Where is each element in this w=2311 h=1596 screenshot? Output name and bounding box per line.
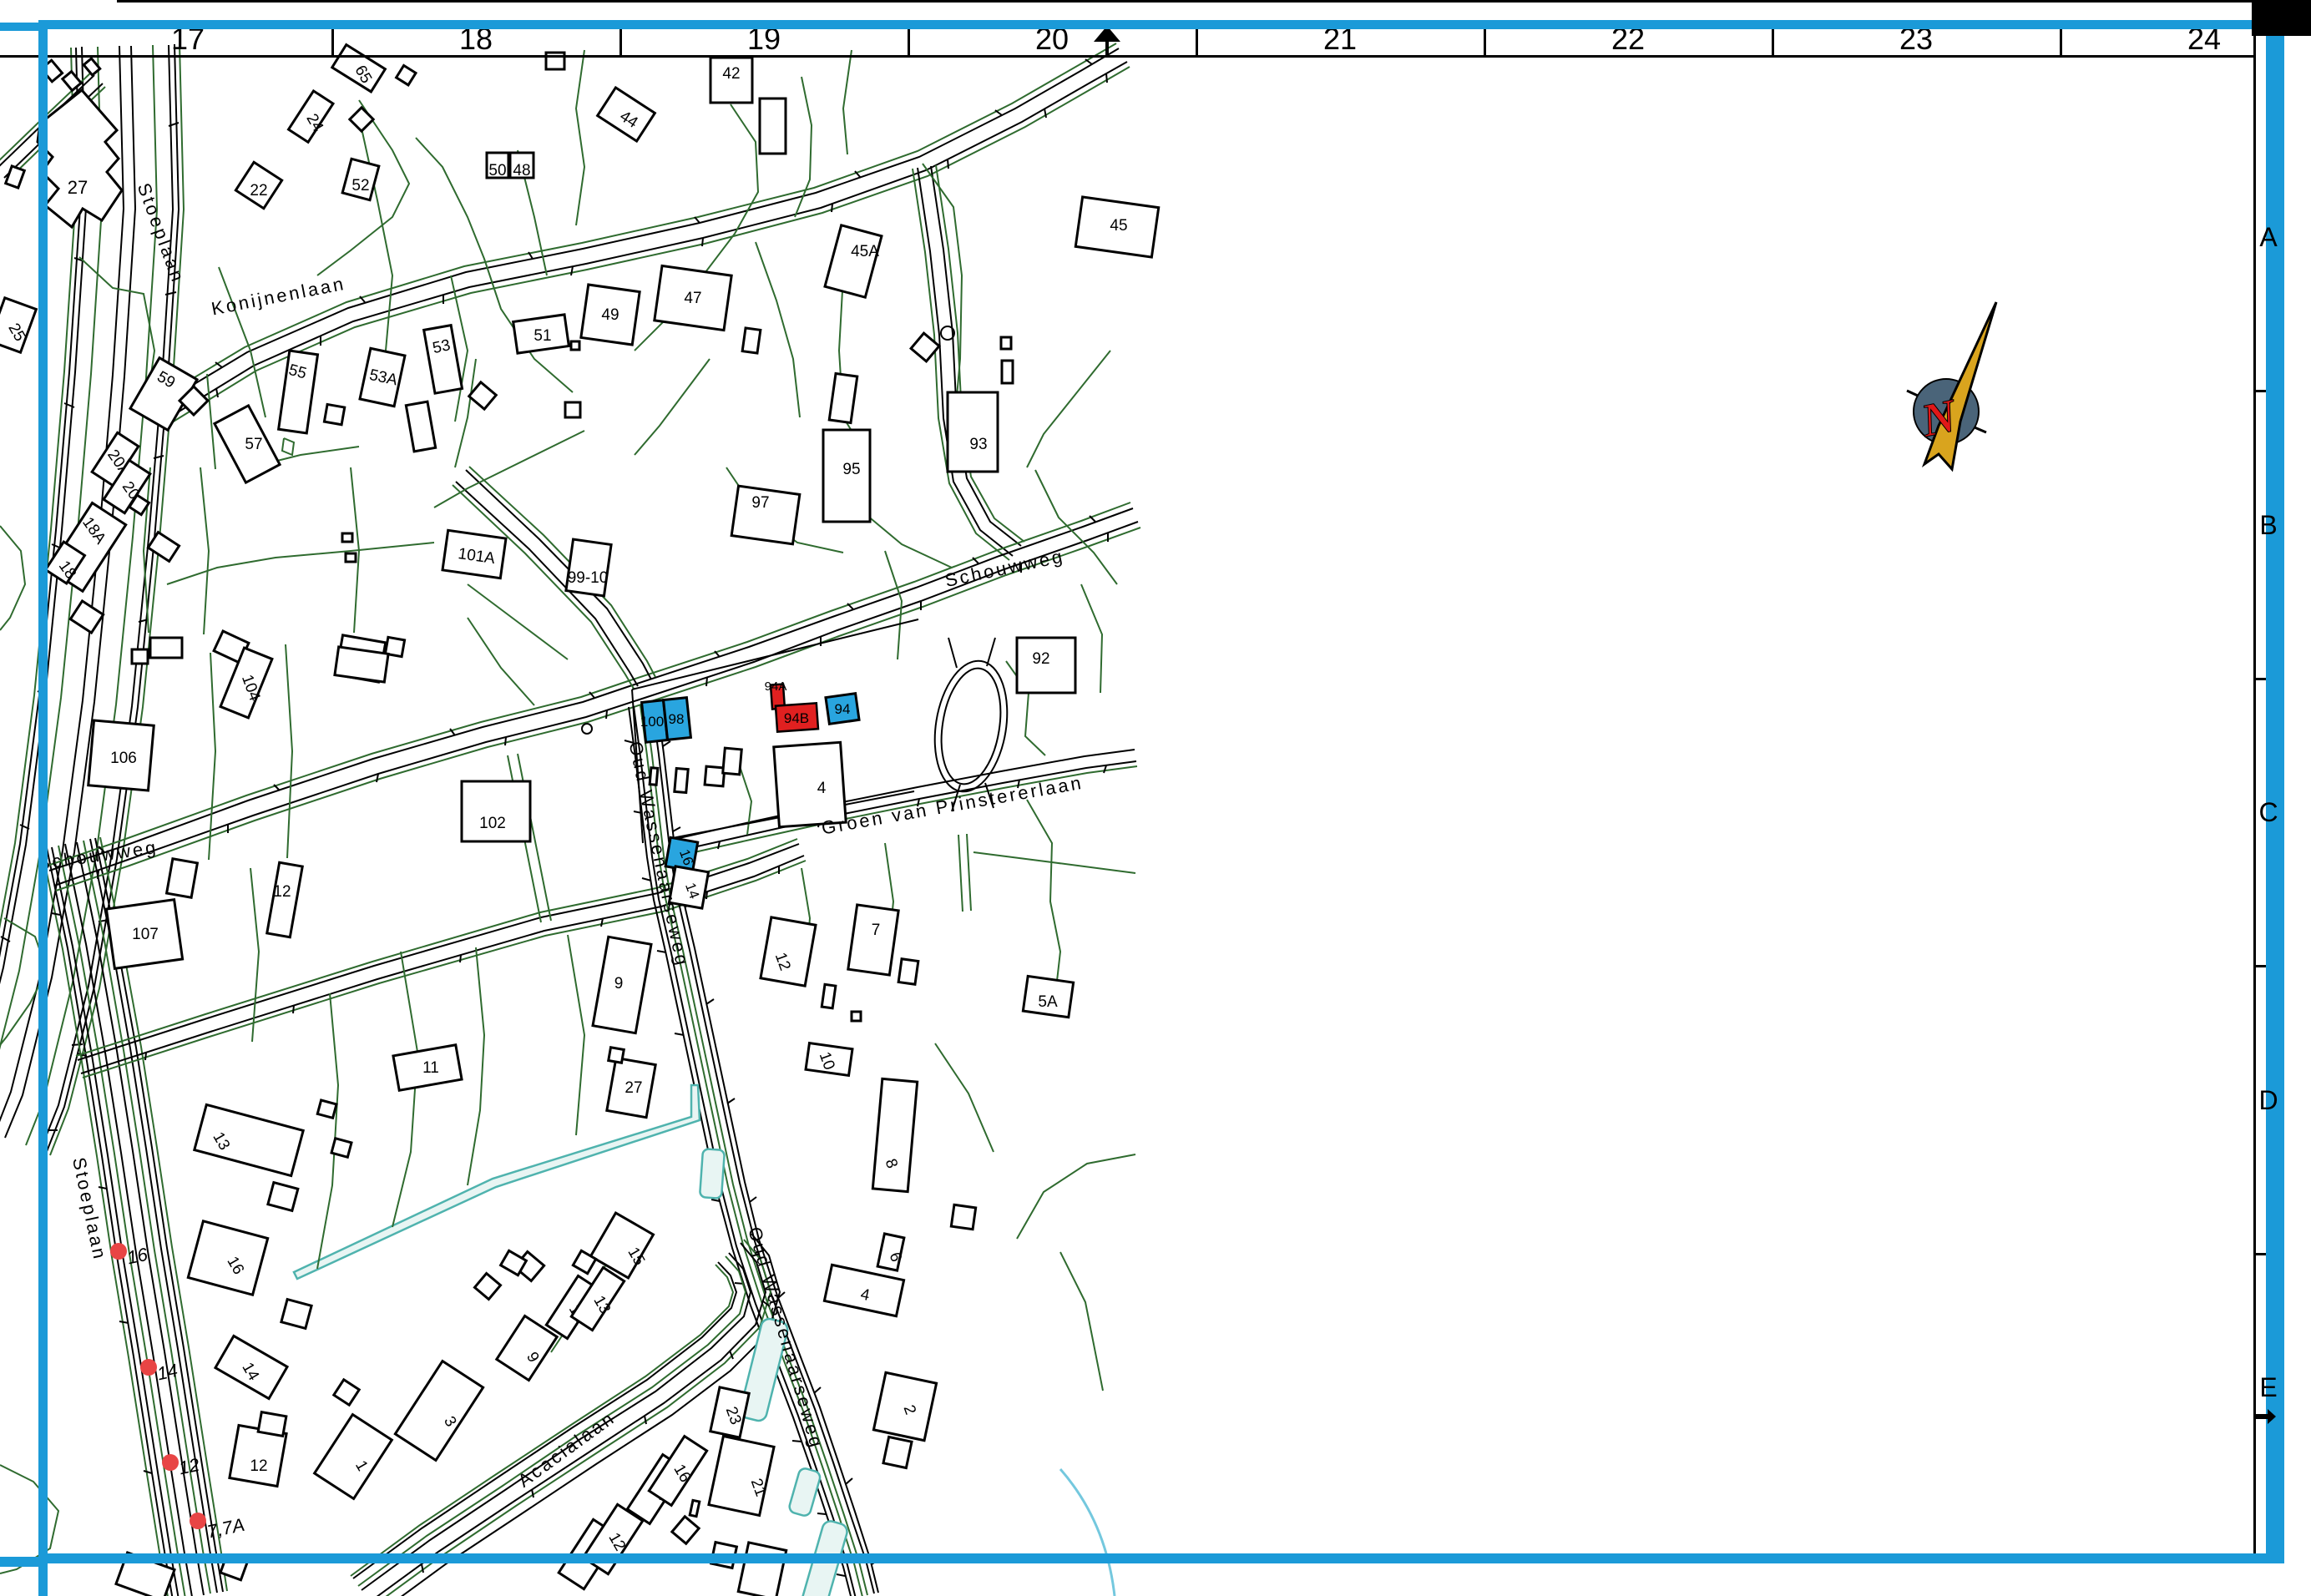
svg-text:B: B [2259, 510, 2277, 540]
svg-text:52: 52 [351, 177, 369, 194]
svg-text:4: 4 [817, 780, 827, 797]
svg-text:94A: 94A [765, 679, 787, 694]
svg-text:11: 11 [422, 1059, 439, 1077]
svg-text:27: 27 [68, 177, 88, 198]
svg-text:95: 95 [842, 461, 860, 478]
svg-text:C: C [2258, 797, 2278, 827]
svg-text:12: 12 [177, 1454, 201, 1479]
svg-text:A: A [2259, 222, 2278, 252]
svg-text:27: 27 [625, 1079, 642, 1097]
svg-text:93: 93 [969, 436, 987, 453]
svg-text:48: 48 [513, 162, 530, 179]
svg-text:5A: 5A [1038, 993, 1058, 1011]
svg-text:53: 53 [431, 336, 452, 357]
svg-text:42: 42 [722, 65, 740, 83]
svg-text:7: 7 [872, 922, 881, 939]
svg-text:45A: 45A [851, 243, 879, 260]
svg-text:50: 50 [488, 162, 506, 179]
svg-text:94: 94 [835, 701, 851, 717]
svg-text:98: 98 [669, 711, 685, 727]
svg-text:45: 45 [1110, 217, 1127, 235]
svg-text:22: 22 [250, 182, 267, 199]
svg-text:D: D [2258, 1085, 2278, 1115]
svg-text:12: 12 [273, 883, 291, 901]
svg-text:47: 47 [684, 290, 701, 307]
svg-text:102: 102 [479, 815, 506, 832]
svg-text:107: 107 [132, 926, 159, 943]
svg-text:94B: 94B [784, 710, 809, 726]
svg-text:49: 49 [601, 306, 619, 324]
svg-text:E: E [2259, 1372, 2277, 1402]
svg-text:92: 92 [1032, 650, 1049, 668]
svg-text:14: 14 [155, 1360, 180, 1385]
svg-text:9: 9 [614, 975, 624, 992]
svg-text:99-10: 99-10 [568, 569, 609, 587]
svg-text:12: 12 [250, 1457, 267, 1475]
svg-text:100: 100 [640, 714, 664, 730]
svg-text:97: 97 [751, 494, 769, 512]
svg-text:51: 51 [534, 327, 551, 345]
svg-text:106: 106 [110, 750, 137, 767]
svg-text:57: 57 [245, 436, 262, 453]
